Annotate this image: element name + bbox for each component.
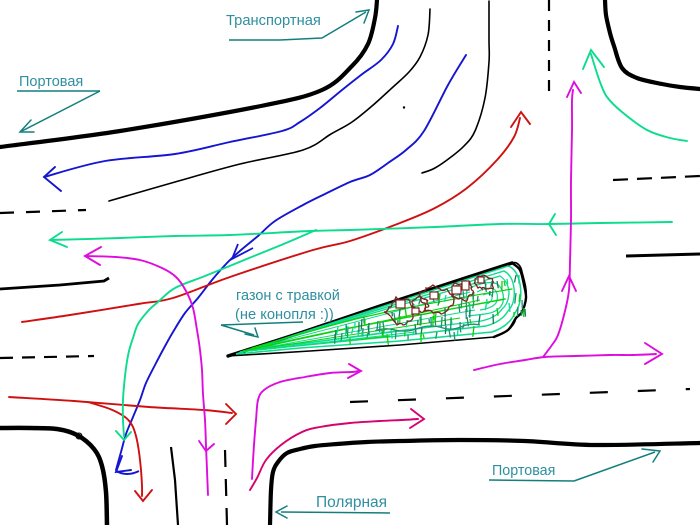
svg-text:Портовая: Портовая [19,74,83,90]
svg-text:Портовая: Портовая [492,463,555,479]
svg-text:Полярная: Полярная [316,494,387,511]
svg-text:(не конопля :)): (не конопля :)) [235,307,334,323]
svg-text:Транспортная: Транспортная [226,13,321,29]
svg-text:газон с травкой: газон с травкой [236,288,340,304]
